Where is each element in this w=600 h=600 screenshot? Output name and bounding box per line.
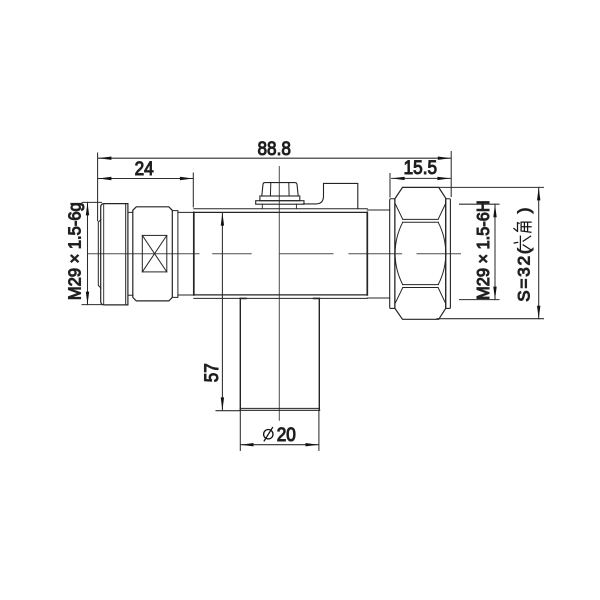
svg-text:88.8: 88.8: [258, 137, 291, 159]
svg-text:S=32(: S=32(: [515, 246, 534, 301]
svg-text:20: 20: [277, 423, 296, 445]
svg-text:24: 24: [135, 157, 154, 179]
svg-text:M29 × 1.5-6g: M29 × 1.5-6g: [65, 202, 84, 300]
svg-text:): ): [515, 208, 534, 214]
svg-text:15.5: 15.5: [404, 156, 437, 178]
svg-text:M29 × 1.5-6H: M29 × 1.5-6H: [474, 200, 494, 299]
svg-text:57: 57: [200, 363, 222, 382]
